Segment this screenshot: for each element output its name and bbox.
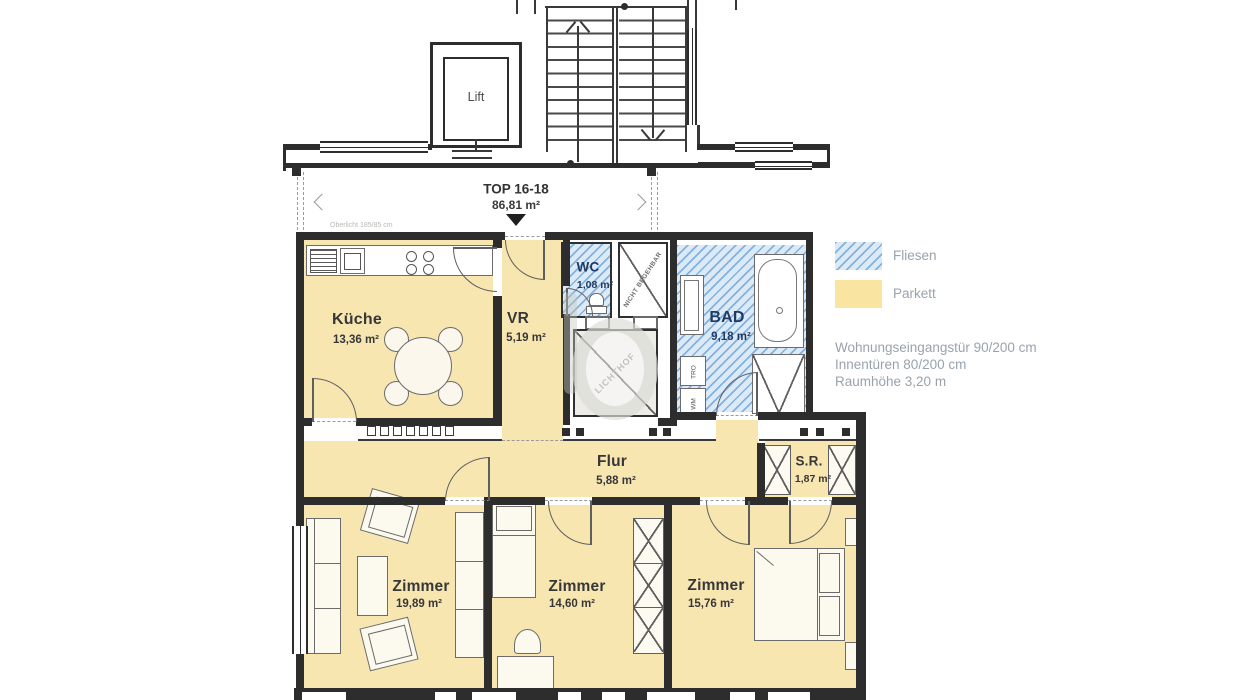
- window-mullion: [735, 147, 793, 148]
- wall-marker: [292, 167, 301, 176]
- wall-stub: [735, 0, 737, 10]
- wardrobe-shelf-line: [456, 609, 483, 610]
- window: [320, 141, 428, 153]
- exterior-wall-right: [856, 412, 866, 700]
- wall-line: [759, 439, 856, 441]
- room-label-flur: Flur: [597, 453, 627, 471]
- sofa-backrest-line: [314, 519, 315, 653]
- wall-segment: [563, 240, 570, 286]
- door-frame-marker: [576, 428, 584, 436]
- radiator-segment: [367, 426, 376, 436]
- desk: [497, 656, 554, 690]
- kitchen-vr-door-leaf: [453, 247, 497, 249]
- kitchen-stove: [404, 249, 443, 278]
- stove-burner: [423, 264, 434, 275]
- floor-plan: NICHT BEGEHBAR LICHTHOF TRO WM: [0, 0, 1236, 700]
- wall-stub: [695, 0, 697, 30]
- wardrobe-section: [634, 519, 663, 564]
- bathroom-vanity: [680, 275, 704, 335]
- wardrobe-crossed: [633, 518, 664, 654]
- kitchen-flur-door-leaf: [312, 378, 314, 422]
- desk-chair: [514, 629, 541, 654]
- toilet-bowl: [589, 293, 604, 306]
- stair-direction-line: [577, 26, 579, 162]
- oberlicht-note: Oberlicht 185/85 cm: [330, 222, 393, 229]
- projection-line: [657, 172, 658, 230]
- interior-wall: [484, 497, 492, 700]
- wardrobe-section: [634, 564, 663, 608]
- room-area-wc: 1,08 m²: [577, 279, 613, 291]
- radiator-segment: [380, 426, 389, 436]
- shower: [752, 354, 805, 414]
- legend-label-tiles: Fliesen: [893, 248, 937, 263]
- wall-stub: [534, 0, 536, 14]
- wall-stub: [516, 0, 518, 14]
- threshold: [505, 236, 545, 237]
- interior-wall: [664, 497, 672, 700]
- window: [687, 28, 697, 125]
- sr-room3-door-leaf: [789, 501, 791, 544]
- kitchen-table: [394, 337, 452, 395]
- wall-segment: [545, 232, 813, 240]
- window: [433, 690, 458, 700]
- room1-door-leaf: [488, 457, 490, 501]
- room-area-bad: 9,18 m²: [711, 331, 751, 343]
- wall-stub: [827, 144, 830, 168]
- wardrobe-shelf-line: [456, 561, 483, 562]
- window: [470, 690, 518, 700]
- window: [766, 690, 812, 700]
- window: [645, 690, 697, 700]
- projection-line: [297, 172, 298, 230]
- bathroom-door-leaf: [756, 372, 758, 416]
- projection-line: [651, 172, 652, 230]
- projection-line: [303, 172, 304, 230]
- unit-area: 86,81 m²: [492, 198, 540, 212]
- window: [292, 526, 308, 654]
- room2-door-leaf: [590, 501, 592, 545]
- wall-segment: [592, 497, 700, 505]
- window: [755, 161, 812, 170]
- pillow: [496, 506, 532, 531]
- wall-segment: [658, 418, 677, 426]
- room-label-kueche: Küche: [332, 311, 382, 329]
- wardrobe: [455, 512, 484, 658]
- wall-segment: [670, 240, 677, 420]
- wall-stub: [687, 0, 689, 30]
- wall-segment: [490, 497, 545, 505]
- stair-stringer: [616, 6, 618, 164]
- window-mullion: [755, 166, 812, 167]
- wall-segment: [493, 296, 502, 425]
- window-mullion: [692, 28, 693, 125]
- wall-segment: [296, 418, 312, 426]
- unit-label: TOP 16-18: [483, 182, 549, 197]
- wall-segment: [745, 497, 788, 505]
- direction-arrow-left-icon: [314, 194, 331, 211]
- dryer-label: TRO: [691, 365, 698, 379]
- stair-newel-dot: [621, 3, 628, 10]
- wall-segment: [758, 412, 806, 420]
- lift-door-mark: [475, 139, 477, 150]
- threshold: [502, 440, 563, 441]
- wall-line: [563, 439, 716, 441]
- sink-basin: [344, 253, 361, 270]
- stair-direction-line: [652, 8, 654, 138]
- pillow: [819, 553, 840, 593]
- room-area-zimmer2: 14,60 m²: [549, 598, 595, 610]
- radiator-segment: [406, 426, 415, 436]
- room-area-kueche: 13,36 m²: [333, 334, 379, 346]
- sofa-cushion-line: [314, 563, 340, 564]
- double-bed: [754, 548, 845, 641]
- stove-burner: [406, 264, 417, 275]
- door-frame-marker: [562, 428, 570, 436]
- stove-burner: [423, 251, 434, 262]
- door-frame-marker: [649, 428, 657, 436]
- direction-arrow-right-icon: [630, 194, 647, 211]
- armchair-seat: [368, 625, 413, 665]
- room-label-sr: S.R.: [795, 454, 822, 469]
- wardrobe-section: [634, 608, 663, 652]
- room-label-zimmer2: Zimmer: [548, 578, 605, 596]
- entrance-marker-icon: [506, 214, 526, 226]
- bathtub: [754, 254, 804, 348]
- washer-label: WM: [691, 398, 698, 410]
- room-label-vr: VR: [507, 310, 529, 328]
- radiator-segment: [432, 426, 441, 436]
- door-frame-marker: [663, 428, 671, 436]
- shower-tray-line: [779, 355, 805, 413]
- radiator-segment: [445, 426, 454, 436]
- room-area-sr: 1,87 m²: [795, 473, 831, 485]
- lift-door-line: [452, 157, 492, 159]
- wall-segment: [296, 497, 445, 505]
- stair-stringer: [612, 6, 614, 164]
- room-label-zimmer3: Zimmer: [687, 577, 744, 595]
- wall-segment: [677, 412, 716, 420]
- kitchen-sink: [340, 248, 365, 274]
- lift-label: Lift: [468, 90, 485, 104]
- room-area-zimmer1: 19,89 m²: [396, 598, 442, 610]
- room-label-wc: WC: [577, 260, 600, 275]
- legend-label-parquet: Parkett: [893, 286, 936, 301]
- single-bed: [492, 502, 536, 598]
- corridor-wall: [283, 163, 698, 168]
- legend-swatch-parquet: [835, 280, 882, 308]
- room3-door-leaf: [748, 501, 750, 545]
- lift-door-line: [452, 150, 492, 152]
- bad-door-passage-floor: [716, 420, 758, 443]
- vanity-basin: [684, 280, 699, 331]
- room-area-vr: 5,19 m²: [506, 332, 546, 344]
- window: [556, 690, 583, 700]
- window-mullion: [300, 526, 301, 654]
- kitchen-radiator-unit: [310, 249, 337, 273]
- pillow: [819, 596, 840, 636]
- window: [300, 690, 348, 700]
- sofa: [306, 518, 341, 654]
- wall-segment: [356, 418, 502, 426]
- entrance-door-leaf: [543, 240, 545, 280]
- window-mullion: [320, 147, 428, 148]
- legend-swatch-tiles: [835, 242, 882, 270]
- stair-flight-left: [546, 6, 612, 152]
- storage-wardrobe: [828, 445, 856, 495]
- wall-segment: [757, 443, 765, 497]
- room-label-zimmer1: Zimmer: [392, 578, 449, 596]
- radiator-segment: [393, 426, 402, 436]
- blanket-line: [493, 535, 535, 536]
- stove-burner: [406, 251, 417, 262]
- room-area-flur: 5,88 m²: [596, 475, 636, 487]
- watermark-stem: [564, 292, 577, 394]
- note-interior-doors: Innentüren 80/200 cm: [835, 357, 966, 372]
- note-entrance-door: Wohnungseingangstür 90/200 cm: [835, 340, 1037, 355]
- bed-head-line: [817, 549, 818, 640]
- door-frame-marker: [816, 428, 824, 436]
- bathtub-drain: [776, 307, 783, 314]
- door-frame-marker: [842, 428, 850, 436]
- note-room-height: Raumhöhe 3,20 m: [835, 374, 946, 389]
- blanket-fold-line: [756, 551, 773, 566]
- storage-wardrobe: [763, 445, 791, 495]
- window: [728, 690, 757, 700]
- window: [600, 690, 627, 700]
- coffee-table: [357, 556, 388, 616]
- wall-segment: [806, 232, 813, 420]
- window: [735, 142, 793, 152]
- watermark: [572, 318, 658, 420]
- bathtub-inner: [758, 259, 797, 342]
- wall-segment: [296, 232, 505, 240]
- sofa-cushion-line: [314, 608, 340, 609]
- door-frame-marker: [800, 428, 808, 436]
- room-label-bad: BAD: [709, 309, 744, 327]
- dryer: TRO: [680, 356, 706, 386]
- radiator-segment: [419, 426, 428, 436]
- wall-marker: [647, 167, 656, 176]
- wall-line: [358, 439, 502, 441]
- room-area-zimmer3: 15,76 m²: [688, 598, 734, 610]
